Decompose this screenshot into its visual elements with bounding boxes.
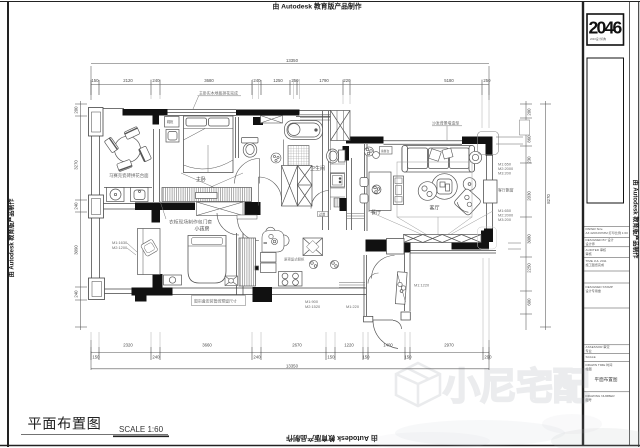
svg-text:200: 200 [527,108,532,116]
svg-text:小孩房: 小孩房 [195,226,210,233]
svg-text:过道: 过道 [319,212,326,217]
svg-text:290: 290 [484,355,492,360]
svg-text:SCALE 1:60: SCALE 1:60 [119,425,164,434]
svg-text:设计师: 设计师 [586,241,595,246]
svg-text:13350: 13350 [286,363,299,368]
svg-text:240: 240 [74,202,79,210]
svg-text:2250: 2250 [527,263,532,273]
svg-text:鞋柜: 鞋柜 [167,119,174,124]
svg-text:150: 150 [327,355,335,360]
svg-text:M2:1200: M2:1200 [112,245,128,250]
svg-text:240: 240 [152,78,160,83]
svg-text:由 Autodesk 教育版产品制作: 由 Autodesk 教育版产品制作 [632,180,640,259]
svg-text:240: 240 [152,355,160,360]
svg-text:M3:200: M3:200 [498,171,512,176]
svg-text:2046: 2046 [589,18,623,38]
svg-text:250: 250 [483,78,491,83]
svg-text:平面布置图: 平面布置图 [595,376,618,383]
svg-text:150: 150 [91,78,99,83]
svg-text:5180: 5180 [444,78,454,83]
svg-text:主卧实木地板拼花完成: 主卧实木地板拼花完成 [199,91,238,96]
svg-text:沙发背景墙造型: 沙发背景墙造型 [432,121,459,126]
svg-text:1790: 1790 [319,78,329,83]
svg-text:150: 150 [92,355,100,360]
svg-text:240: 240 [253,355,261,360]
svg-text:窗帘盒安装管线预留尺寸: 窗帘盒安装管线预留尺寸 [194,299,237,304]
svg-text:150: 150 [404,355,412,360]
svg-text:200: 200 [74,106,79,114]
svg-text:3080: 3080 [527,234,532,244]
svg-text:由 Autodesk 教育版产品制作: 由 Autodesk 教育版产品制作 [286,434,378,443]
svg-text:平面布置图: 平面布置图 [28,417,102,433]
svg-text:3680: 3680 [204,78,214,83]
svg-text:1250: 1250 [273,78,283,83]
svg-text:860: 860 [527,135,532,143]
svg-text:马赛克瓷砖拼花台面: 马赛克瓷砖拼花台面 [109,172,149,179]
svg-text:客厅飘窗: 客厅飘窗 [498,188,514,193]
svg-text:专业: 专业 [586,348,592,353]
svg-text:250: 250 [291,78,299,83]
svg-text:M2:1520: M2:1520 [305,304,321,309]
svg-text:150: 150 [362,355,370,360]
svg-text:2120: 2120 [123,78,133,83]
svg-text:M1:220: M1:220 [346,304,360,309]
svg-text:小尼宅配: 小尼宅配 [443,365,589,407]
svg-text:240: 240 [253,78,261,83]
svg-text:13350: 13350 [286,58,299,63]
svg-text:由 Autodesk 教育版产品制作: 由 Autodesk 教育版产品制作 [272,2,361,11]
svg-text:230: 230 [527,156,532,164]
svg-text:餐厅: 餐厅 [371,209,381,216]
svg-text:由 Autodesk 教育版产品制作: 由 Autodesk 教育版产品制作 [8,199,16,278]
svg-text:3660: 3660 [202,343,212,348]
svg-text:1220: 1220 [344,343,354,348]
svg-text:设计专用章: 设计专用章 [586,288,601,293]
svg-text:2320: 2320 [123,343,133,348]
svg-text:2970: 2970 [444,343,454,348]
svg-text:衣柜现场制作包门套: 衣柜现场制作包门套 [169,219,212,226]
svg-text:M3:200: M3:200 [498,217,512,222]
svg-text:审核: 审核 [586,251,592,256]
svg-text:备餐台: 备餐台 [381,149,390,153]
svg-text:2046设计机构: 2046设计机构 [590,37,607,41]
svg-text:客厅: 客厅 [430,205,440,212]
svg-text:600: 600 [527,298,532,306]
svg-text:M1:1220: M1:1220 [414,283,430,288]
svg-text:施工图纸完成: 施工图纸完成 [586,262,605,267]
svg-text:A3 420X297MM 打印比例 1:60: A3 420X297MM 打印比例 1:60 [586,230,629,235]
svg-text:8270: 8270 [546,194,551,204]
svg-text:3270: 3270 [74,160,79,170]
svg-text:原预留式橱柜: 原预留式橱柜 [284,256,305,261]
svg-text:240: 240 [74,290,79,298]
svg-text:卫生间: 卫生间 [310,165,325,172]
svg-text:2670: 2670 [292,343,302,348]
svg-text:3090: 3090 [74,245,79,255]
svg-text:SCALE: SCALE [586,355,596,359]
svg-text:2030: 2030 [527,191,532,201]
